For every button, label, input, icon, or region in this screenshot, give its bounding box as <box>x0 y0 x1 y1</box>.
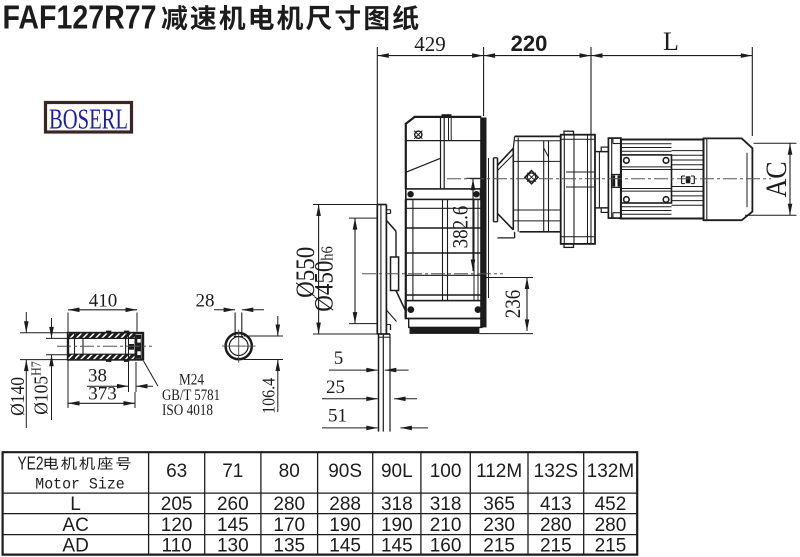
svg-text:Motor Size: Motor Size <box>35 475 124 493</box>
svg-text:145: 145 <box>217 515 249 536</box>
svg-text:80: 80 <box>279 461 300 482</box>
svg-text:135: 135 <box>273 536 305 557</box>
svg-text:410: 410 <box>89 291 118 312</box>
svg-text:71: 71 <box>222 461 243 482</box>
svg-text:M24: M24 <box>179 372 204 389</box>
svg-text:190: 190 <box>381 515 413 536</box>
svg-text:100: 100 <box>430 461 462 482</box>
svg-text:205: 205 <box>161 494 193 515</box>
svg-text:280: 280 <box>273 494 305 515</box>
svg-text:210: 210 <box>430 515 462 536</box>
svg-text:318: 318 <box>430 494 462 515</box>
svg-text:260: 260 <box>217 494 249 515</box>
svg-text:90S: 90S <box>328 461 362 482</box>
svg-text:236: 236 <box>502 290 525 318</box>
svg-text:230: 230 <box>483 515 515 536</box>
svg-text:160: 160 <box>430 536 462 557</box>
svg-text:BOSERL: BOSERL <box>49 104 128 136</box>
svg-text:318: 318 <box>381 494 413 515</box>
svg-text:51: 51 <box>328 406 347 427</box>
svg-text:215: 215 <box>540 536 572 557</box>
svg-text:112M: 112M <box>476 461 522 482</box>
svg-text:130: 130 <box>217 536 249 557</box>
svg-text:220: 220 <box>511 31 548 56</box>
svg-text:90L: 90L <box>381 461 413 482</box>
svg-text:L: L <box>663 27 679 56</box>
svg-text:429: 429 <box>414 32 446 56</box>
svg-text:FAF127R77: FAF127R77 <box>3 0 157 36</box>
svg-text:L: L <box>70 494 81 515</box>
svg-text:280: 280 <box>540 515 572 536</box>
svg-text:132M: 132M <box>587 461 635 482</box>
svg-text:AC: AC <box>62 515 88 536</box>
svg-text:215: 215 <box>483 536 515 557</box>
svg-text:365: 365 <box>483 494 515 515</box>
svg-text:190: 190 <box>329 515 361 536</box>
svg-text:AC: AC <box>760 161 793 197</box>
svg-text:373: 373 <box>88 384 117 405</box>
svg-text:25: 25 <box>326 377 345 398</box>
svg-text:110: 110 <box>162 536 192 557</box>
svg-text:28: 28 <box>196 291 215 312</box>
svg-text:106.4: 106.4 <box>259 378 279 414</box>
svg-text:413: 413 <box>540 494 572 515</box>
svg-text:5: 5 <box>334 348 344 369</box>
svg-text:280: 280 <box>595 515 627 536</box>
svg-text:288: 288 <box>329 494 361 515</box>
svg-text:63: 63 <box>166 461 187 482</box>
svg-text:215: 215 <box>595 536 627 557</box>
svg-text:452: 452 <box>595 494 627 515</box>
svg-text:132S: 132S <box>534 461 578 482</box>
svg-text:Ø105H7: Ø105H7 <box>29 361 53 415</box>
svg-text:AD: AD <box>62 536 88 557</box>
svg-text:382.6: 382.6 <box>449 206 472 249</box>
svg-text:170: 170 <box>273 515 305 536</box>
svg-text:YE2: YE2 <box>18 454 44 474</box>
svg-text:145: 145 <box>381 536 413 557</box>
svg-text:145: 145 <box>329 536 361 557</box>
svg-text:120: 120 <box>161 515 193 536</box>
svg-text:ISO 4018: ISO 4018 <box>162 402 213 419</box>
